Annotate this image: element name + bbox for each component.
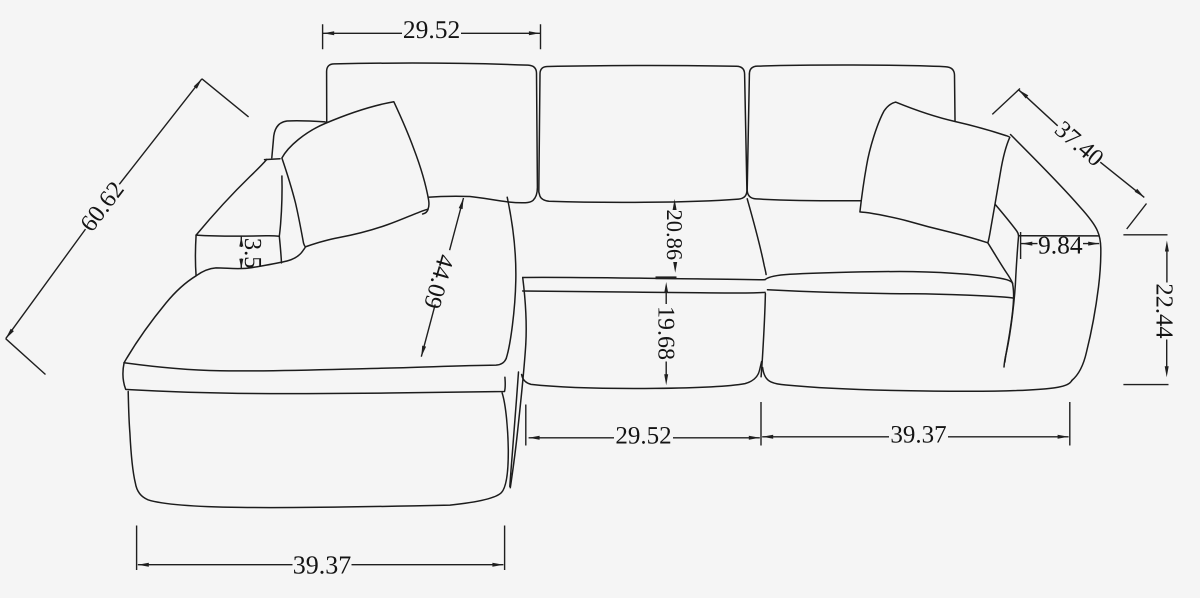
svg-text:29.52: 29.52 [403,15,460,44]
svg-text:9.84: 9.84 [1038,231,1083,260]
svg-text:22.44: 22.44 [1150,283,1177,338]
svg-text:3.5: 3.5 [239,238,266,269]
svg-text:39.37: 39.37 [890,422,946,449]
svg-text:29.52: 29.52 [615,423,671,450]
svg-text:39.37: 39.37 [293,550,352,579]
svg-text:20.86: 20.86 [662,209,687,260]
svg-text:19.68: 19.68 [653,306,679,360]
